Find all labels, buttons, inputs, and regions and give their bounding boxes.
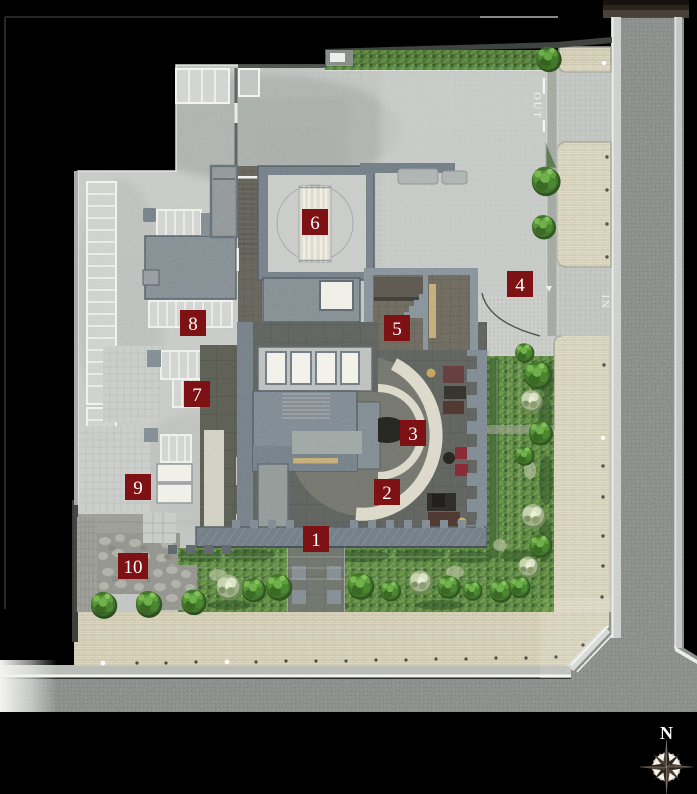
svg-text:4: 4 (515, 275, 525, 296)
svg-text:10: 10 (124, 557, 143, 578)
svg-text:5: 5 (392, 319, 402, 340)
svg-text:6: 6 (310, 213, 320, 234)
svg-text:9: 9 (133, 478, 143, 499)
svg-text:7: 7 (192, 385, 202, 406)
svg-text:N: N (660, 723, 673, 743)
svg-text:8: 8 (188, 314, 198, 335)
svg-text:2: 2 (382, 483, 392, 504)
svg-text:IN: IN (599, 294, 610, 309)
svg-text:1: 1 (311, 530, 321, 551)
svg-text:3: 3 (408, 424, 418, 445)
svg-text:OUT: OUT (531, 92, 542, 120)
